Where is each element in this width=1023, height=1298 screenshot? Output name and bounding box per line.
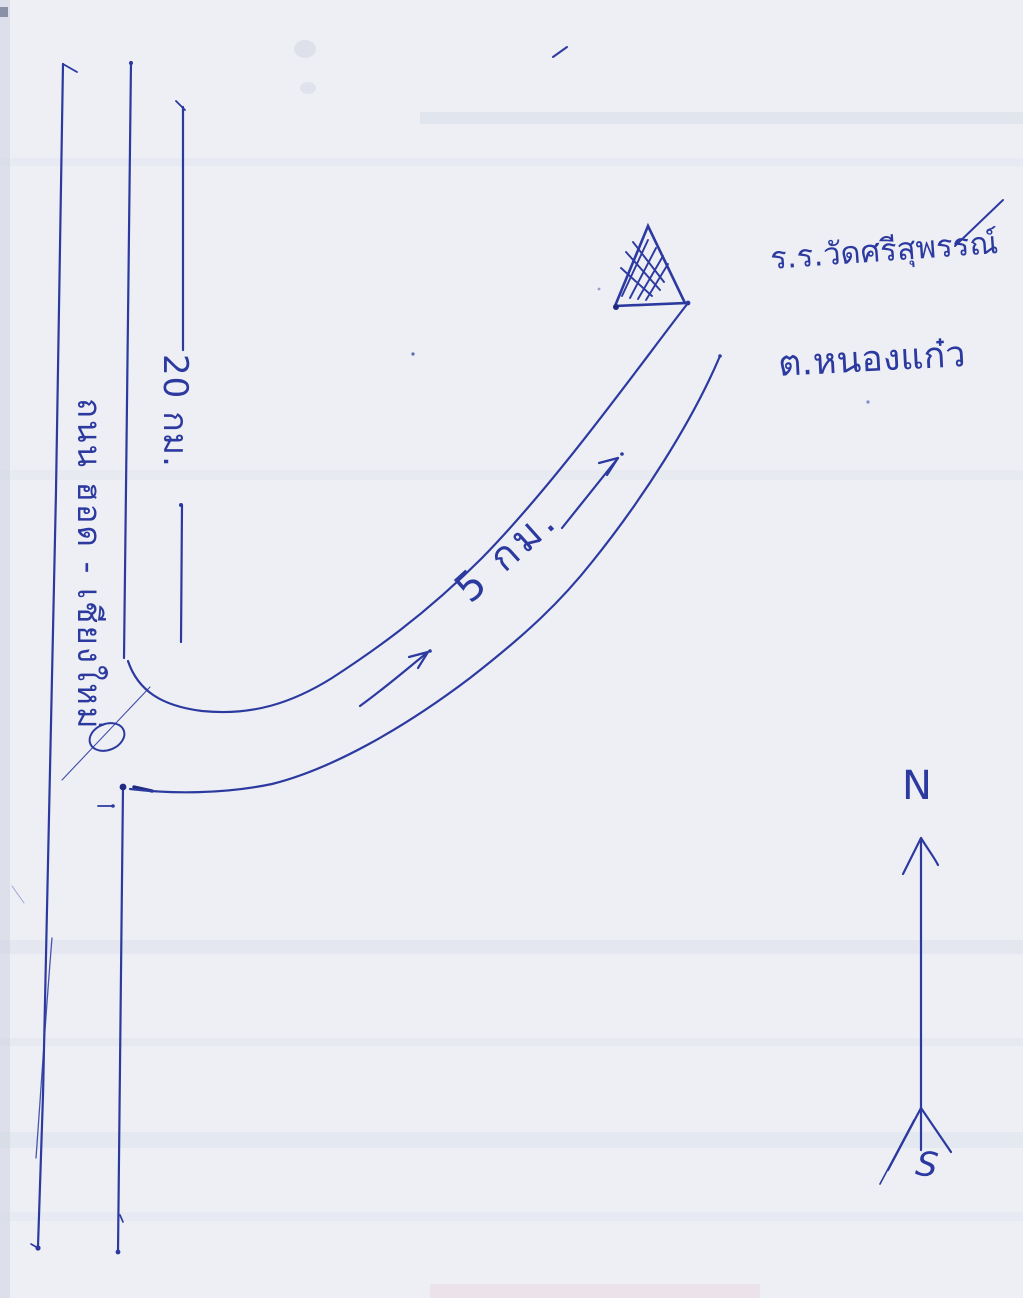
branch-road-lower-edge — [130, 356, 720, 792]
main-road-right-edge — [116, 61, 133, 1254]
direction-arrow-large — [562, 452, 624, 528]
school-triangle-icon — [613, 226, 685, 310]
direction-arrow-small — [360, 649, 432, 706]
compass-north-label: N — [902, 766, 932, 806]
scanned-hand-drawn-map: ถนน ฮอด - เชียงใหม่ 20 กม. 5 กม. ร.ร.วัด… — [0, 0, 1023, 1298]
branch-road-end-dot — [718, 354, 722, 358]
north-arrow-icon — [880, 838, 951, 1184]
main-road-distance-label: 20 กม. — [158, 354, 192, 504]
main-road-name-label: ถนน ฮอด - เชียงใหม่ — [73, 398, 106, 848]
subdistrict-label: ต.หนองแก๋ว — [777, 337, 966, 383]
branch-road-upper-edge — [128, 303, 688, 712]
map-drawing — [0, 0, 1023, 1298]
